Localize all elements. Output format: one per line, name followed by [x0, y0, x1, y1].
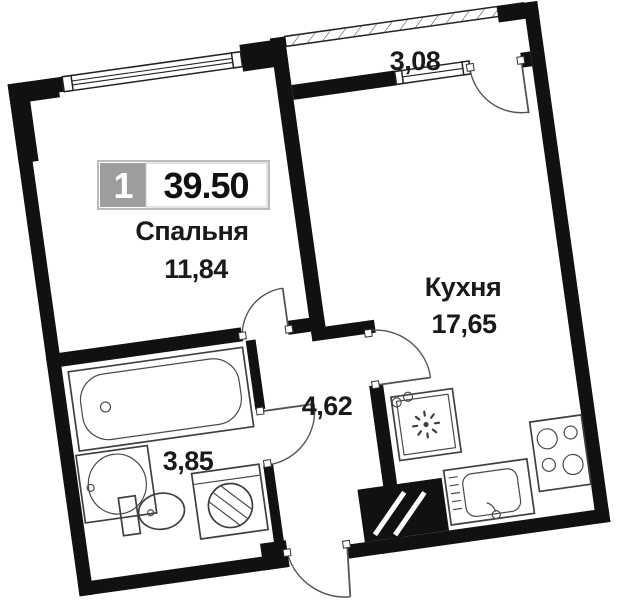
wall-right	[523, 1, 610, 524]
balcony-glazing	[285, 3, 525, 46]
walls	[6, 1, 610, 596]
badge-total-area: 39.50	[163, 165, 248, 206]
plan-badge[interactable]: 1 39.50	[98, 161, 269, 209]
balcony-area: 3,08	[390, 46, 441, 76]
wall-balcony-kitchen-left	[291, 70, 396, 99]
wall-bedroom-bottom	[46, 327, 243, 368]
wall-bathroom-upper	[246, 339, 266, 410]
floor-plan-svg: 1 39.50 Спальня 11,84 3,08 Кухня 17,65 4…	[0, 0, 625, 600]
kitchen-area: 17,65	[431, 309, 497, 339]
floor-plan-page: 1 39.50 Спальня 11,84 3,08 Кухня 17,65 4…	[0, 0, 625, 600]
bedroom-door	[233, 288, 293, 342]
kitchen-sink	[444, 459, 535, 525]
entrance-door	[283, 540, 357, 600]
labels: 1 39.50 Спальня 11,84 3,08 Кухня 17,65 4…	[98, 46, 501, 476]
bedroom-label: Спальня	[135, 216, 248, 246]
refrigerator	[391, 386, 462, 460]
bathroom-area: 3,85	[163, 446, 214, 476]
badge-rooms-count: 1	[113, 165, 133, 206]
kitchen-label: Кухня	[425, 272, 501, 302]
stove	[530, 415, 591, 492]
hallway-area: 4,62	[302, 391, 353, 421]
wall-bottom-left	[78, 553, 290, 596]
balcony-door	[466, 56, 531, 121]
snowflake-icon	[411, 410, 440, 439]
plan-geometry	[6, 1, 615, 600]
bedroom-window	[62, 52, 242, 92]
bathtub	[68, 347, 253, 451]
bedroom-area: 11,84	[164, 254, 228, 284]
bathroom-sink	[76, 446, 157, 523]
